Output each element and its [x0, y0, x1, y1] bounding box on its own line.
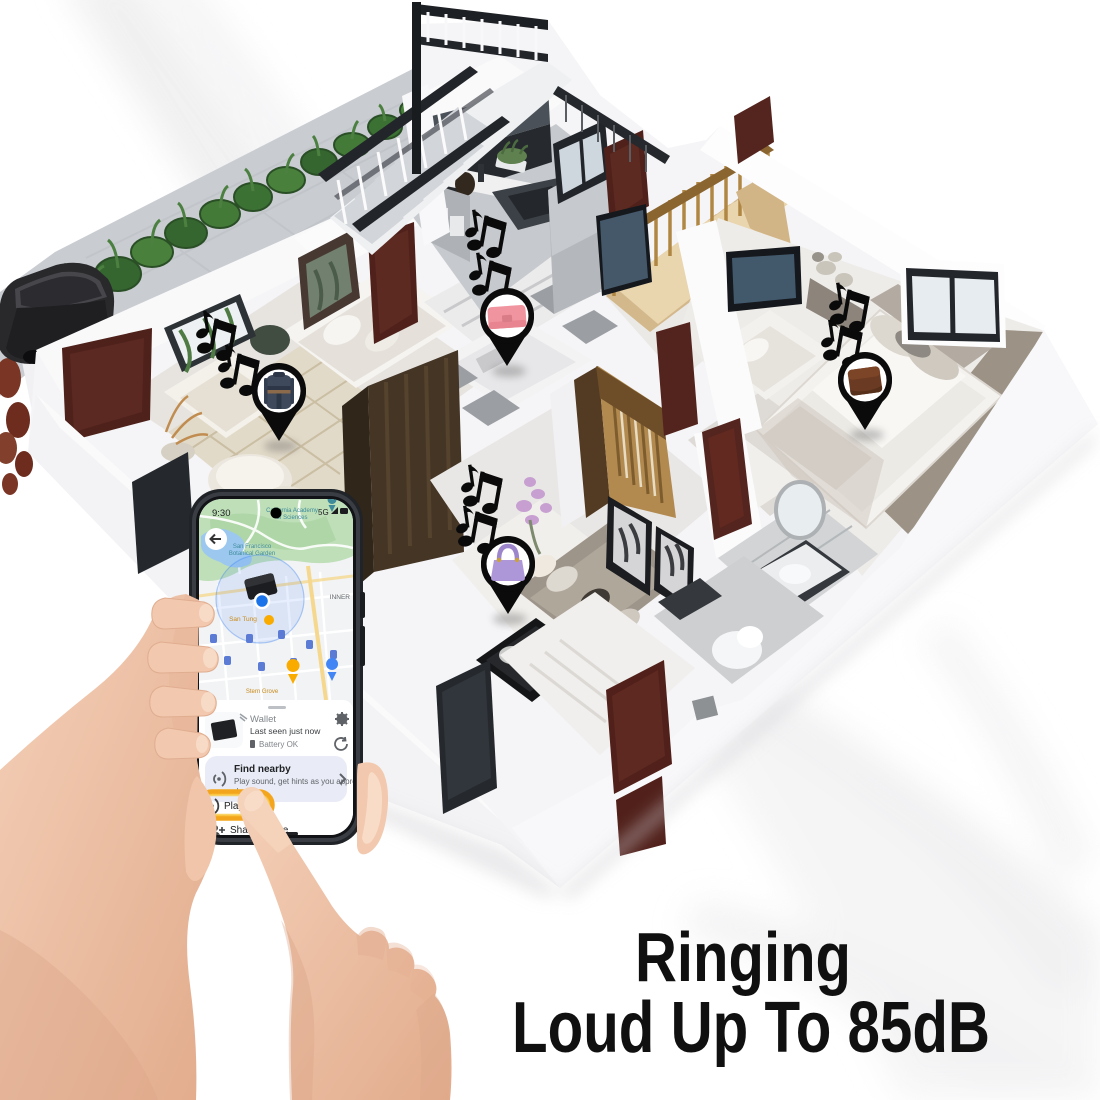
svg-text:5G: 5G	[318, 508, 329, 517]
svg-text:of Sciences: of Sciences	[276, 515, 307, 521]
svg-text:San Tung: San Tung	[229, 616, 257, 623]
svg-text:San Francisco: San Francisco	[233, 544, 272, 550]
svg-text:Botanical Garden: Botanical Garden	[229, 551, 275, 557]
svg-text:Find nearby: Find nearby	[234, 764, 291, 775]
svg-text:Last seen just now: Last seen just now	[250, 726, 321, 736]
svg-text:INNER: INNER	[330, 594, 351, 601]
svg-text:Stern Grove: Stern Grove	[246, 689, 279, 695]
svg-text:Ringing: Ringing	[635, 918, 851, 996]
svg-text:9:30: 9:30	[212, 508, 231, 519]
svg-text:Wallet: Wallet	[250, 714, 276, 725]
svg-text:Loud Up To 85dB: Loud Up To 85dB	[512, 988, 990, 1068]
svg-text:Battery OK: Battery OK	[259, 740, 299, 749]
svg-text:Play sound, get hints as you a: Play sound, get hints as you approach	[234, 777, 370, 786]
